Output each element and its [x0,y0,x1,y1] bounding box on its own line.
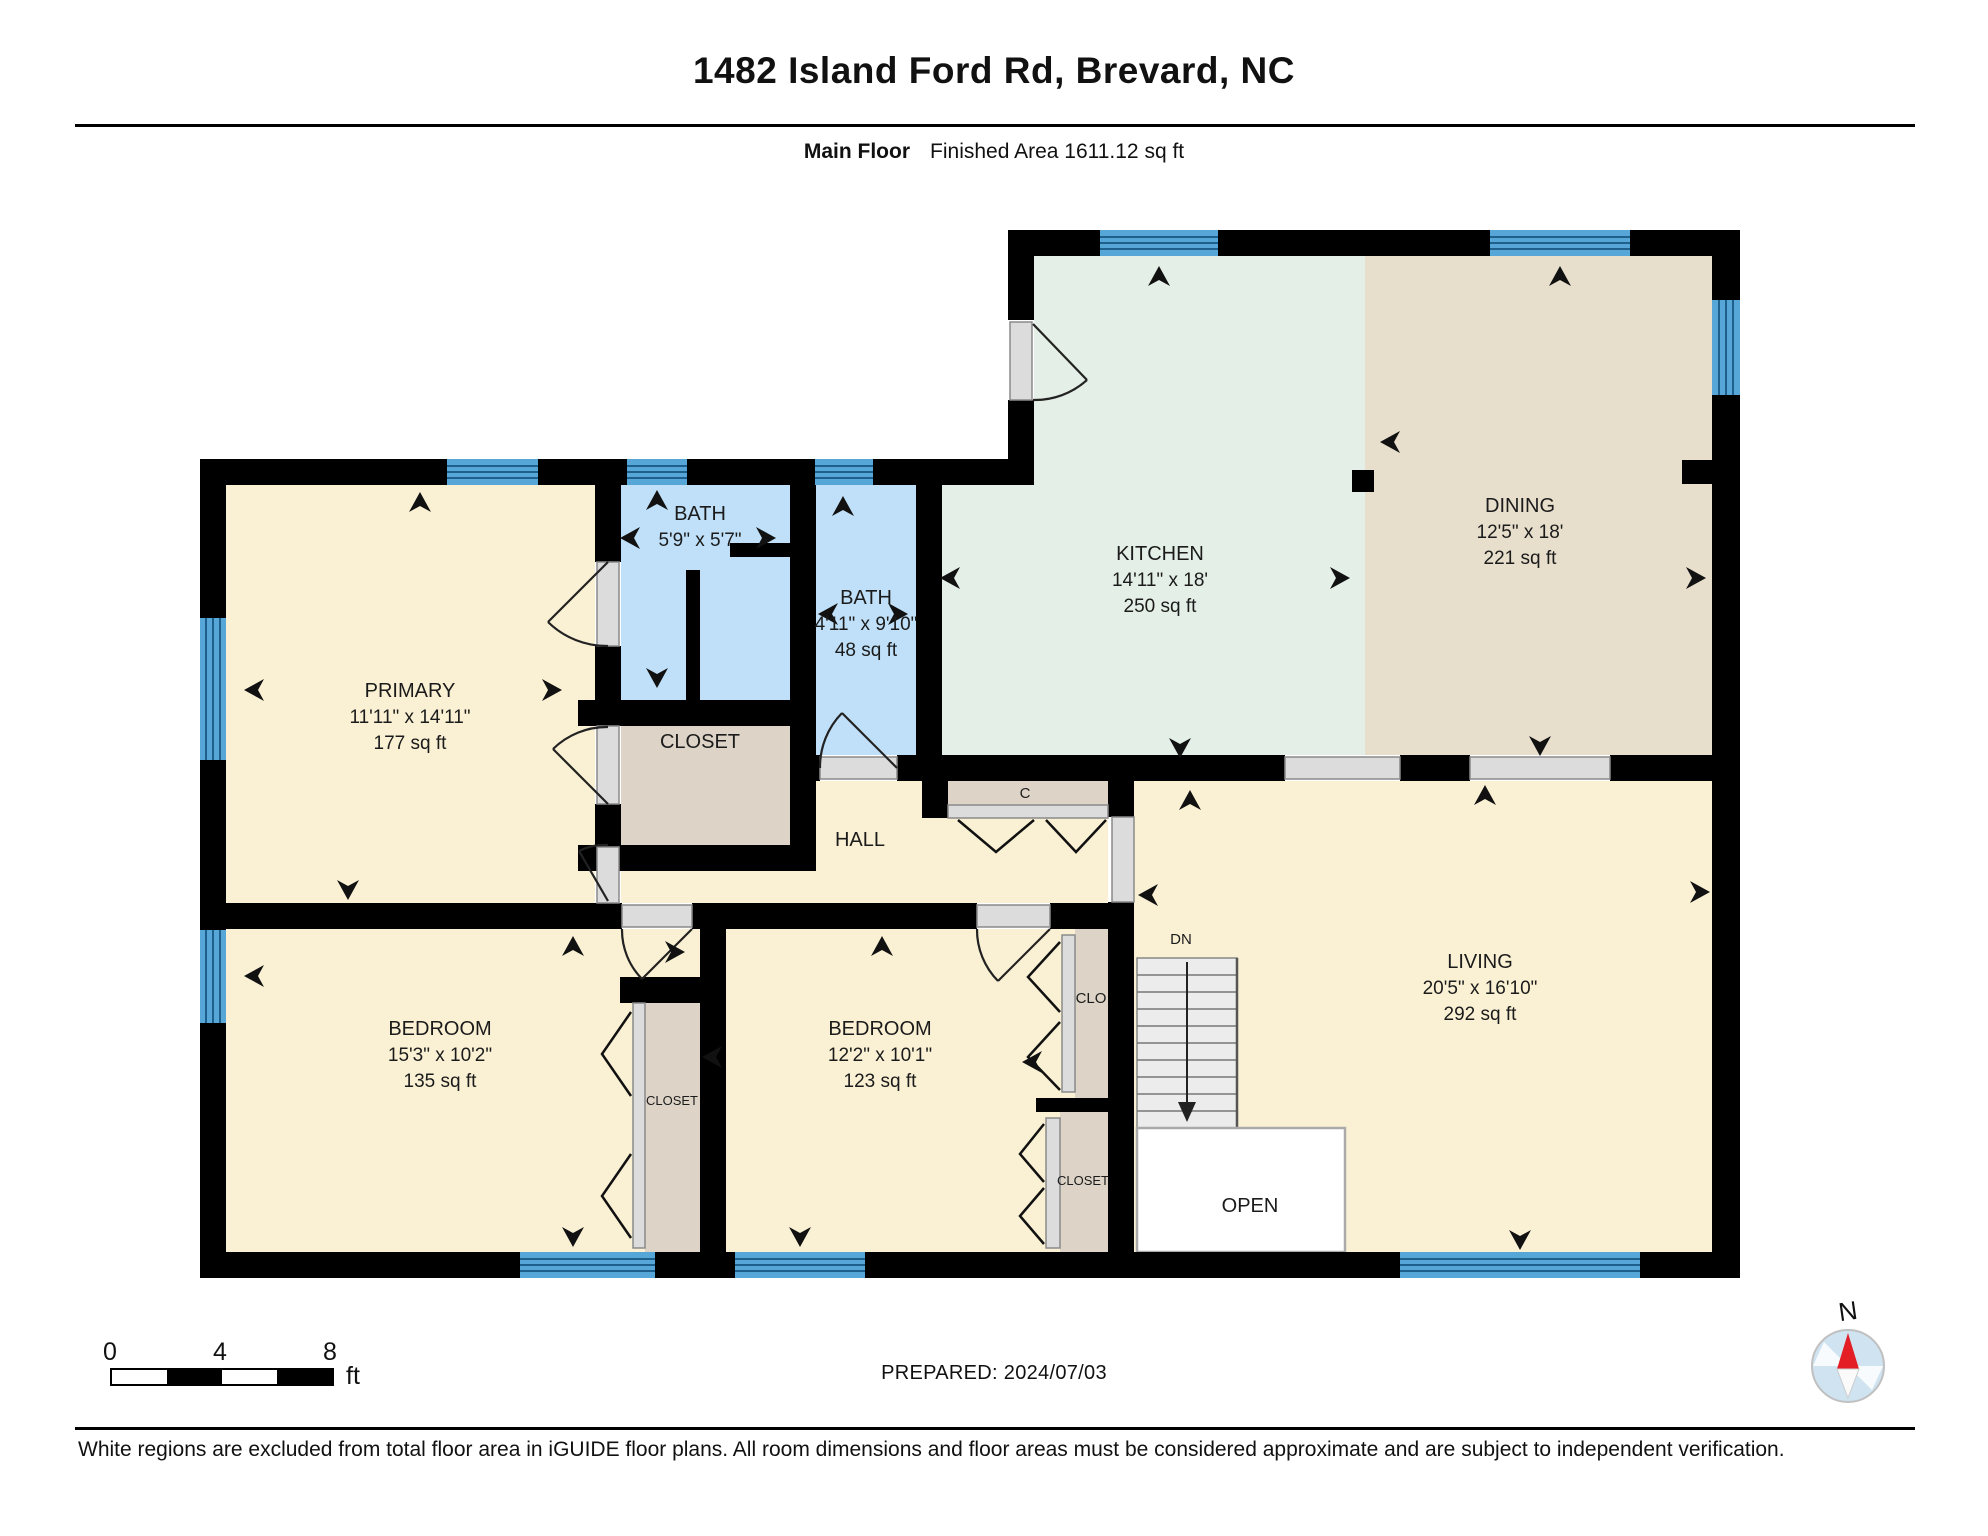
clo-floor [1075,929,1108,1098]
prepared-date: PREPARED: 2024/07/03 [0,1362,1988,1385]
svg-text:12'5" x 18': 12'5" x 18' [1477,522,1564,543]
bedrooms-closet-floor [645,1003,700,1252]
floorplan-drawing: PRIMARY 11'11" x 14'11" 177 sq ft BATH 5… [0,0,1988,1536]
kitchen-living-opening [1285,757,1400,779]
stairs [1137,958,1237,1128]
c-closet-label: C [1020,785,1031,802]
clo-label: CLO [1076,990,1107,1007]
svg-text:12'2" x 10'1": 12'2" x 10'1" [828,1045,932,1066]
compass: N [1806,1296,1890,1412]
svg-text:250 sq ft: 250 sq ft [1124,596,1198,617]
floorplan-page: 1482 Island Ford Rd, Brevard, NC Main Fl… [0,0,1988,1536]
svg-text:4'11" x 9'10": 4'11" x 9'10" [815,614,918,635]
dn-label: DN [1170,931,1192,948]
svg-text:11'11" x 14'11": 11'11" x 14'11" [349,707,470,728]
footer-divider [75,1427,1915,1430]
footer-disclaimer: White regions are excluded from total fl… [78,1438,1918,1462]
bedroom2-closet-label: CLOSET [1057,1173,1109,1188]
svg-text:DINING: DINING [1485,495,1555,517]
c-closet-track [948,805,1108,818]
svg-text:BATH: BATH [674,503,726,525]
hall-label: HALL [835,829,885,851]
open-label: OPEN [1222,1195,1279,1217]
dining-living-opening [1470,757,1610,779]
hall-living-opening [1112,817,1134,902]
svg-text:KITCHEN: KITCHEN [1116,543,1204,565]
dining-label: DINING 12'5" x 18' 221 sq ft [1477,495,1564,569]
kitchen-floor [942,256,1365,755]
open-area [1137,1128,1345,1252]
svg-text:177 sq ft: 177 sq ft [374,733,448,754]
kitchen-label: KITCHEN 14'11" x 18' 250 sq ft [1112,543,1208,617]
bedrooms-closet-track [633,1003,645,1248]
svg-text:BEDROOM: BEDROOM [828,1018,931,1040]
clo-track [1062,935,1075,1092]
svg-text:5'9" x 5'7": 5'9" x 5'7" [658,530,741,551]
svg-text:BEDROOM: BEDROOM [388,1018,491,1040]
bedrooms-closet-label: CLOSET [646,1093,698,1108]
room-fills [226,256,1712,1252]
svg-text:221 sq ft: 221 sq ft [1484,548,1558,569]
svg-text:48 sq ft: 48 sq ft [835,640,898,661]
svg-text:20'5" x 16'10": 20'5" x 16'10" [1423,978,1538,999]
svg-text:LIVING: LIVING [1447,951,1513,973]
svg-text:BATH: BATH [840,587,892,609]
svg-text:15'3" x 10'2": 15'3" x 10'2" [388,1045,492,1066]
svg-text:PRIMARY: PRIMARY [365,680,456,702]
primary-closet-label: CLOSET [660,731,740,753]
svg-text:123 sq ft: 123 sq ft [844,1071,918,1092]
svg-text:292 sq ft: 292 sq ft [1444,1004,1518,1025]
svg-text:135 sq ft: 135 sq ft [404,1071,478,1092]
svg-text:14'11" x 18': 14'11" x 18' [1112,570,1208,591]
